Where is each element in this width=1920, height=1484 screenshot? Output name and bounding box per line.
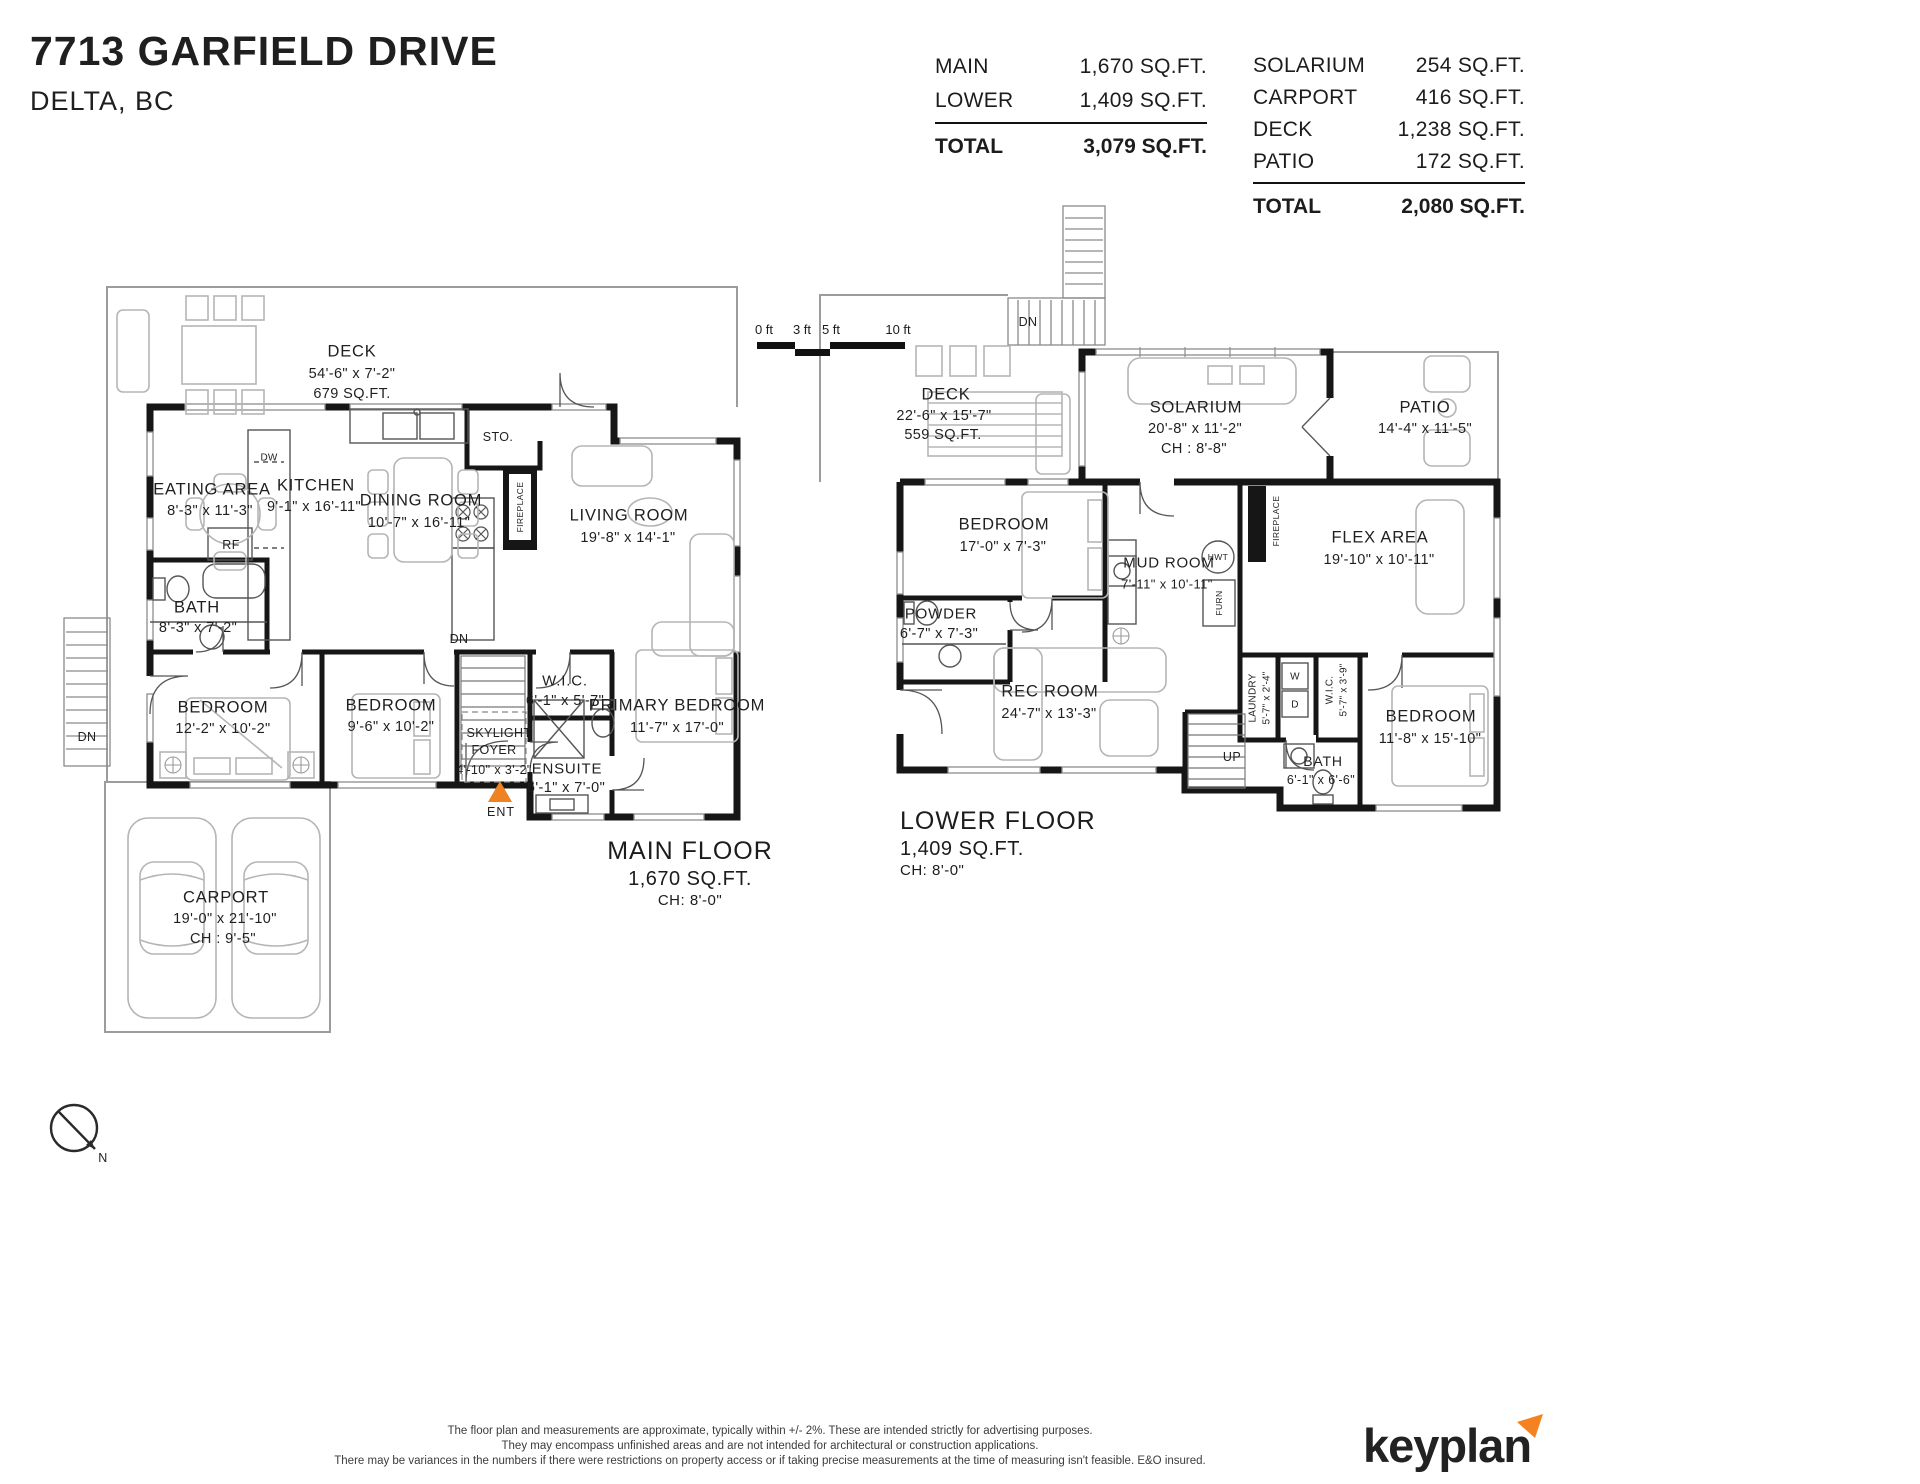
scale-bar: [757, 342, 905, 356]
room-label-eating-area: EATING AREA: [153, 481, 271, 500]
table-row: SOLARIUM254 SQ.FT.: [1253, 50, 1525, 82]
fridge-label: RF: [222, 538, 239, 552]
lower-deck-outline: [820, 295, 1008, 482]
compass-north-label: N: [98, 1151, 107, 1165]
sink-counter: [350, 409, 468, 443]
room-dims-powder: 6'-7" x 7'-3": [900, 626, 978, 642]
room-dims-laundry: 5'-7" x 2'-4": [1262, 672, 1273, 725]
table-row: DECK1,238 SQ.FT.: [1253, 114, 1525, 146]
room-label-foyer: FOYER: [471, 743, 516, 757]
outdoor-area-table: SOLARIUM254 SQ.FT. CARPORT416 SQ.FT. DEC…: [1253, 50, 1525, 219]
room-label-dining-room: DINING ROOM: [360, 492, 482, 511]
keyplan-fox-icon: [1515, 1414, 1545, 1440]
lower-stairs-down-label: DN: [1019, 315, 1038, 329]
room-label-bath: BATH: [174, 599, 220, 618]
room-label-lower-wic: W.I.C.: [1325, 676, 1336, 704]
fireplace-label: FIREPLACE: [515, 482, 525, 533]
stairs-down-label: DN: [450, 632, 469, 646]
hot-water-tank-label: HWT: [1208, 552, 1229, 562]
floor-area-table: MAIN1,670 SQ.FT. LOWER1,409 SQ.FT. TOTAL…: [935, 50, 1207, 159]
room-label-lower-deck: DECK: [921, 386, 970, 405]
room-dims-flex-area: 19'-10" x 10'-11": [1323, 552, 1434, 568]
main-floor-title: MAIN FLOOR 1,670 SQ.FT. CH: 8'-0": [570, 836, 810, 911]
lower-fireplace: [1248, 486, 1266, 562]
room-dims-living-room: 19'-8" x 14'-1": [580, 530, 675, 546]
table-total-row: TOTAL3,079 SQ.FT.: [935, 124, 1207, 159]
room-dims-eating-area: 8'-3" x 11'-3": [167, 503, 253, 519]
scale-label: 0 ft: [755, 322, 773, 337]
table-row: CARPORT416 SQ.FT.: [1253, 82, 1525, 114]
room-label-skylight: SKYLIGHT: [466, 726, 531, 740]
room-dims-rec-room: 24'-7" x 13'-3": [1001, 706, 1096, 722]
room-dims-bath: 8'-3" x 7'-2": [159, 620, 237, 636]
room-dims-lower-bedroom-right: 11'-8" x 15'-10": [1379, 731, 1482, 747]
table-total-row: TOTAL2,080 SQ.FT.: [1253, 184, 1525, 219]
room-label-primary-bedroom: PRIMARY BEDROOM: [589, 697, 765, 716]
floorplan-page: 7713 GARFIELD DRIVE DELTA, BC MAIN1,670 …: [0, 0, 1920, 1484]
solarium-sofa: [1128, 358, 1296, 404]
room-ch-carport: CH : 9'-5": [190, 931, 256, 947]
room-label-carport: CARPORT: [183, 889, 269, 908]
room-ch-solarium: CH : 8'-8": [1161, 441, 1227, 457]
room-dims-bedroom1: 12'-2" x 10'-2": [175, 721, 270, 737]
page-subtitle: DELTA, BC: [30, 86, 175, 117]
room-label-mud-room: MUD ROOM: [1123, 555, 1214, 572]
disclaimer-text: The floor plan and measurements are appr…: [320, 1424, 1220, 1469]
storage-label: STO.: [483, 430, 514, 444]
furnace-label: FURN: [1214, 590, 1224, 615]
room-label-bedroom1: BEDROOM: [178, 699, 269, 718]
room-dims-kitchen: 9'-1" x 16'-11": [267, 499, 361, 515]
lower-floor-title: LOWER FLOOR 1,409 SQ.FT. CH: 8'-0": [900, 806, 1096, 881]
room-dims-lower-wic: 5'-7" x 3'-9": [1339, 664, 1350, 717]
room-label-flex-area: FLEX AREA: [1331, 529, 1428, 548]
bbq: [117, 310, 149, 392]
room-dims-foyer: 4'-10" x 3'-2": [456, 763, 532, 777]
room-label-patio: PATIO: [1399, 399, 1450, 418]
scale-label: 10 ft: [885, 322, 910, 337]
compass-icon: [51, 1105, 97, 1151]
room-label-kitchen: KITCHEN: [277, 477, 355, 496]
room-dims-bedroom2: 9'-6" x 10'-2": [348, 719, 435, 735]
sofa: [690, 534, 734, 656]
room-label-wic: W.I.C.: [542, 673, 588, 690]
room-label-lower-bath: BATH: [1303, 753, 1343, 769]
room-dims-deck: 54'-6" x 7'-2": [309, 366, 396, 382]
dryer-label: D: [1291, 700, 1298, 711]
room-dims-carport: 19'-0" x 21'-10": [173, 911, 277, 927]
powder-sink: [939, 645, 961, 667]
bathtub: [203, 564, 265, 598]
room-label-deck: DECK: [327, 343, 376, 362]
scale-label: 5 ft: [822, 322, 840, 337]
table-row: LOWER1,409 SQ.FT.: [935, 84, 1207, 118]
page-title: 7713 GARFIELD DRIVE: [30, 28, 498, 75]
room-label-lower-bedroom-left: BEDROOM: [959, 516, 1050, 535]
room-area-lower-deck: 559 SQ.FT.: [904, 427, 981, 443]
room-dims-dining-room: 10'-7" x 16'-11": [368, 515, 471, 531]
room-label-bedroom2: BEDROOM: [346, 697, 437, 716]
room-label-solarium: SOLARIUM: [1150, 399, 1243, 418]
deck-stairs-down-label: DN: [78, 730, 97, 744]
room-dims-ensuite: 6'-1" x 7'-0": [527, 780, 605, 796]
room-dims-primary-bedroom: 11'-7" x 17'-0": [630, 720, 724, 736]
washer-label: W: [1290, 672, 1300, 683]
room-dims-patio: 14'-4" x 11'-5": [1378, 421, 1472, 437]
room-dims-solarium: 20'-8" x 11'-2": [1148, 421, 1242, 437]
room-label-ensuite: ENSUITE: [532, 761, 603, 778]
stairs-up-label: UP: [1223, 750, 1241, 764]
room-dims-lower-bath: 6'-1" x 6'-6": [1287, 773, 1355, 787]
room-area-deck: 679 SQ.FT.: [313, 386, 390, 402]
room-label-laundry: LAUNDRY: [1248, 673, 1259, 722]
entry-label: ENT: [487, 805, 515, 819]
table-row: MAIN1,670 SQ.FT.: [935, 50, 1207, 84]
keyplan-logo: keyplan: [1363, 1418, 1531, 1473]
floorplan-drawing: [0, 0, 1920, 1484]
loveseat: [572, 446, 652, 486]
room-dims-lower-bedroom-left: 17'-0" x 7'-3": [960, 539, 1047, 555]
lower-fireplace-label: FIREPLACE: [1271, 496, 1281, 547]
dishwasher-label: DW: [260, 453, 277, 464]
room-label-lower-bedroom-right: BEDROOM: [1386, 708, 1477, 727]
room-dims-lower-deck: 22'-6" x 15'-7": [896, 408, 991, 424]
deck-table: [182, 326, 256, 384]
scale-label: 3 ft: [793, 322, 811, 337]
room-label-powder: POWDER: [905, 606, 977, 623]
bbq: [1036, 394, 1070, 474]
room-label-living-room: LIVING ROOM: [570, 507, 689, 526]
main-outer-walls: [150, 407, 737, 817]
room-label-rec-room: REC ROOM: [1001, 683, 1098, 702]
room-dims-mud-room: 7'-11" x 10'-11": [1121, 577, 1213, 592]
table-row: PATIO172 SQ.FT.: [1253, 146, 1525, 178]
